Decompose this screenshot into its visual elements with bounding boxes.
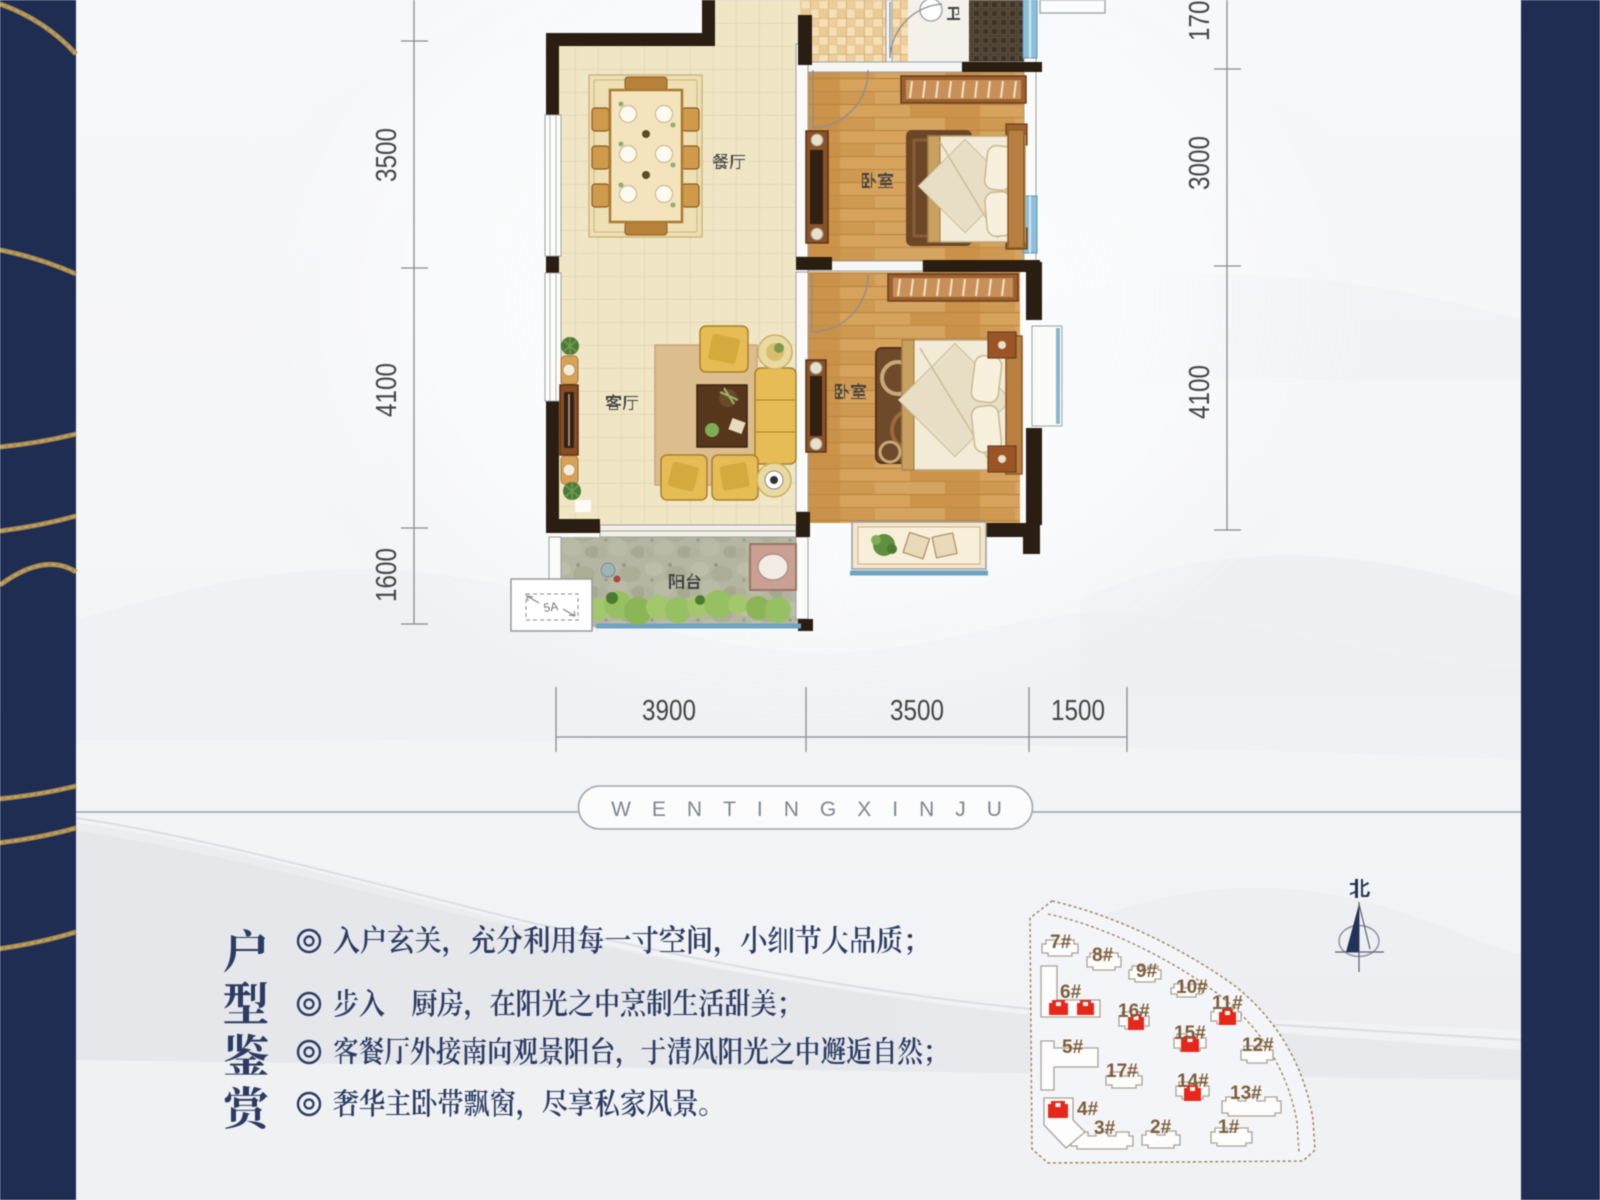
svg-text:7#: 7# (1050, 932, 1072, 953)
svg-text:4100: 4100 (1184, 365, 1216, 419)
svg-text:3500: 3500 (890, 695, 944, 727)
svg-text:4100: 4100 (371, 363, 403, 417)
svg-text:13#: 13# (1230, 1083, 1262, 1104)
svg-text:15#: 15# (1174, 1023, 1206, 1044)
svg-text:3500: 3500 (371, 128, 403, 182)
svg-text:2#: 2# (1150, 1117, 1172, 1138)
svg-text:6#: 6# (1060, 982, 1082, 1003)
svg-text:8#: 8# (1092, 945, 1114, 966)
svg-text:10#: 10# (1176, 977, 1208, 998)
svg-text:5A: 5A (543, 599, 559, 615)
svg-text:17#: 17# (1106, 1061, 1138, 1082)
svg-text:1700: 1700 (1184, 0, 1216, 41)
svg-text:14#: 14# (1177, 1071, 1209, 1092)
svg-text:WENTINGXINJU: WENTINGXINJU (611, 798, 1023, 821)
svg-text:1600: 1600 (371, 548, 403, 602)
svg-text:16#: 16# (1118, 1001, 1150, 1022)
svg-text:3900: 3900 (642, 695, 696, 727)
svg-text:3000: 3000 (1184, 136, 1216, 190)
svg-text:1#: 1# (1218, 1117, 1240, 1138)
svg-text:9#: 9# (1136, 961, 1158, 982)
svg-text:12#: 12# (1242, 1035, 1274, 1056)
svg-text:5#: 5# (1062, 1037, 1084, 1058)
svg-text:4#: 4# (1077, 1099, 1099, 1120)
svg-text:3#: 3# (1094, 1118, 1116, 1139)
svg-text:1500: 1500 (1051, 695, 1105, 727)
svg-text:11#: 11# (1212, 993, 1243, 1014)
